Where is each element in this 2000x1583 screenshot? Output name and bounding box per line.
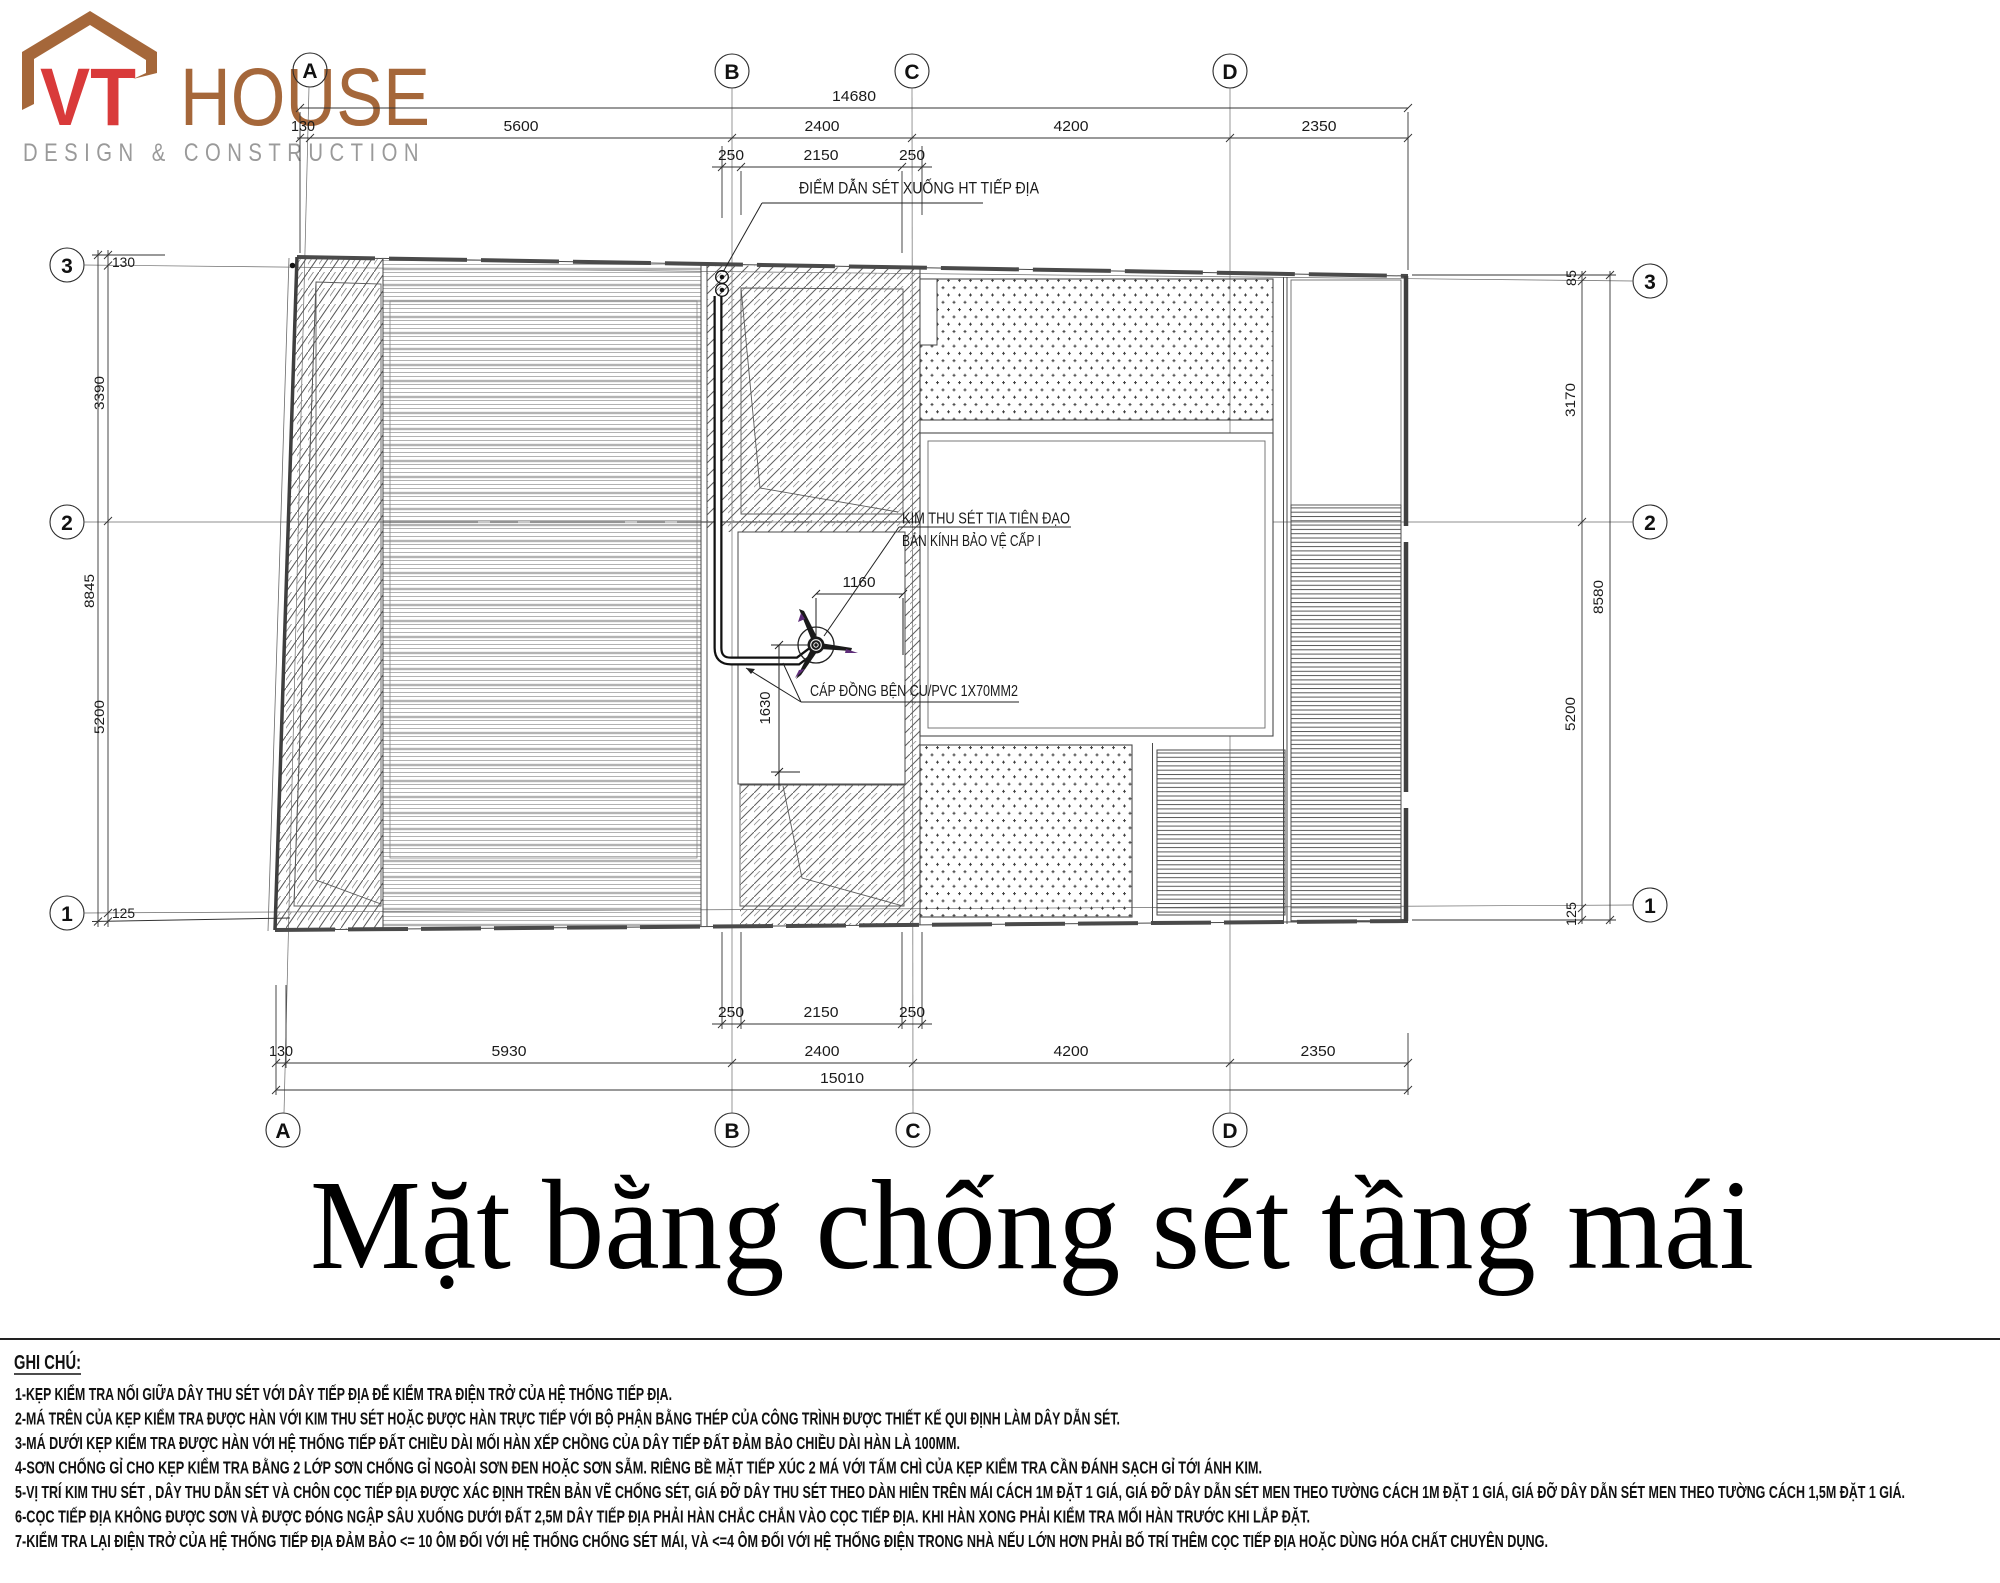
- svg-text:5200: 5200: [91, 700, 107, 734]
- svg-text:2150: 2150: [804, 147, 839, 164]
- svg-text:3170: 3170: [1562, 383, 1578, 417]
- svg-text:2400: 2400: [805, 118, 840, 135]
- svg-text:15010: 15010: [820, 1070, 864, 1087]
- svg-text:BÁN KÍNH BẢO VỆ CẤP I: BÁN KÍNH BẢO VỆ CẤP I: [902, 531, 1041, 550]
- svg-text:Mặt bằng chống sét tầng mái: Mặt bằng chống sét tầng mái: [310, 1154, 1754, 1296]
- svg-text:1160: 1160: [843, 574, 876, 591]
- svg-text:1630: 1630: [757, 692, 774, 725]
- svg-text:B: B: [724, 61, 739, 84]
- svg-text:D: D: [1222, 1120, 1237, 1143]
- svg-text:8580: 8580: [1590, 580, 1606, 614]
- svg-text:130: 130: [269, 1043, 293, 1060]
- svg-text:2350: 2350: [1301, 1043, 1336, 1060]
- svg-text:3390: 3390: [91, 376, 107, 410]
- svg-text:2150: 2150: [804, 1004, 839, 1021]
- svg-text:250: 250: [899, 147, 925, 164]
- svg-text:8845: 8845: [81, 574, 97, 608]
- svg-text:C: C: [904, 61, 919, 84]
- svg-text:2400: 2400: [805, 1043, 840, 1060]
- svg-text:C: C: [905, 1120, 920, 1143]
- svg-text:4200: 4200: [1054, 118, 1089, 135]
- svg-text:2: 2: [61, 512, 73, 535]
- svg-text:3: 3: [1644, 271, 1656, 294]
- svg-text:D: D: [1222, 61, 1237, 84]
- svg-text:85: 85: [1563, 270, 1579, 286]
- svg-text:250: 250: [718, 147, 744, 164]
- svg-text:KIM THU SÉT TIA TIÊN ĐẠO: KIM THU SÉT TIA TIÊN ĐẠO: [902, 509, 1070, 528]
- svg-text:250: 250: [718, 1004, 744, 1021]
- svg-text:7-KIỂM TRA LẠI ĐIỆN TRỞ CỦA HỆ: 7-KIỂM TRA LẠI ĐIỆN TRỞ CỦA HỆ THỐNG TIẾ…: [15, 1530, 1548, 1551]
- svg-text:2350: 2350: [1302, 118, 1337, 135]
- svg-text:5600: 5600: [504, 118, 539, 135]
- svg-text:125: 125: [112, 905, 135, 921]
- svg-text:3: 3: [61, 255, 73, 278]
- svg-text:A: A: [302, 60, 317, 83]
- svg-text:130: 130: [291, 118, 315, 135]
- svg-text:1-KẸP KIỂM TRA NỐI GIỮA DÂY TH: 1-KẸP KIỂM TRA NỐI GIỮA DÂY THU SÉT VỚI …: [15, 1383, 672, 1404]
- svg-text:2: 2: [1644, 512, 1656, 535]
- svg-text:GHI CHÚ:: GHI CHÚ:: [14, 1350, 81, 1374]
- svg-text:VT: VT: [40, 52, 136, 143]
- svg-text:ĐIỂM DẪN SÉT XUỐNG HT TIẾP ĐỊA: ĐIỂM DẪN SÉT XUỐNG HT TIẾP ĐỊA: [799, 178, 1040, 198]
- svg-text:6-CỌC TIẾP ĐỊA KHÔNG ĐƯỢC SƠN: 6-CỌC TIẾP ĐỊA KHÔNG ĐƯỢC SƠN VÀ ĐƯỢC ĐÓ…: [15, 1506, 1310, 1527]
- svg-text:B: B: [724, 1120, 739, 1143]
- svg-text:1: 1: [1644, 895, 1656, 918]
- svg-text:130: 130: [112, 254, 135, 270]
- svg-text:1: 1: [61, 903, 73, 926]
- svg-text:CÁP ĐỒNG BỆN CU/PVC 1X70MM2: CÁP ĐỒNG BỆN CU/PVC 1X70MM2: [810, 681, 1018, 700]
- svg-text:A: A: [275, 1120, 290, 1143]
- svg-text:5-VỊ TRÍ KIM THU SÉT , DÂY THU: 5-VỊ TRÍ KIM THU SÉT , DÂY THU DẪN SÉT V…: [15, 1481, 1905, 1502]
- svg-text:DESIGN & CONSTRUCTION: DESIGN & CONSTRUCTION: [23, 139, 425, 167]
- svg-text:5930: 5930: [492, 1043, 527, 1060]
- svg-text:3-MÁ DƯỚI KẸP KIỂM TRA ĐƯỢC HÀ: 3-MÁ DƯỚI KẸP KIỂM TRA ĐƯỢC HÀN VỚI HỆ T…: [15, 1432, 960, 1453]
- svg-text:2-MÁ TRÊN CỦA KẸP KIỂM TRA ĐƯỢ: 2-MÁ TRÊN CỦA KẸP KIỂM TRA ĐƯỢC HÀN VỚI …: [15, 1408, 1120, 1429]
- svg-text:4-SƠN CHỐNG GỈ CHO KẸP KIỂM TR: 4-SƠN CHỐNG GỈ CHO KẸP KIỂM TRA BẰNG 2 L…: [15, 1457, 1262, 1478]
- svg-text:4200: 4200: [1054, 1043, 1089, 1060]
- svg-text:5200: 5200: [1562, 697, 1578, 731]
- svg-text:125: 125: [1563, 902, 1579, 926]
- svg-text:14680: 14680: [832, 88, 876, 105]
- svg-text:250: 250: [899, 1004, 925, 1021]
